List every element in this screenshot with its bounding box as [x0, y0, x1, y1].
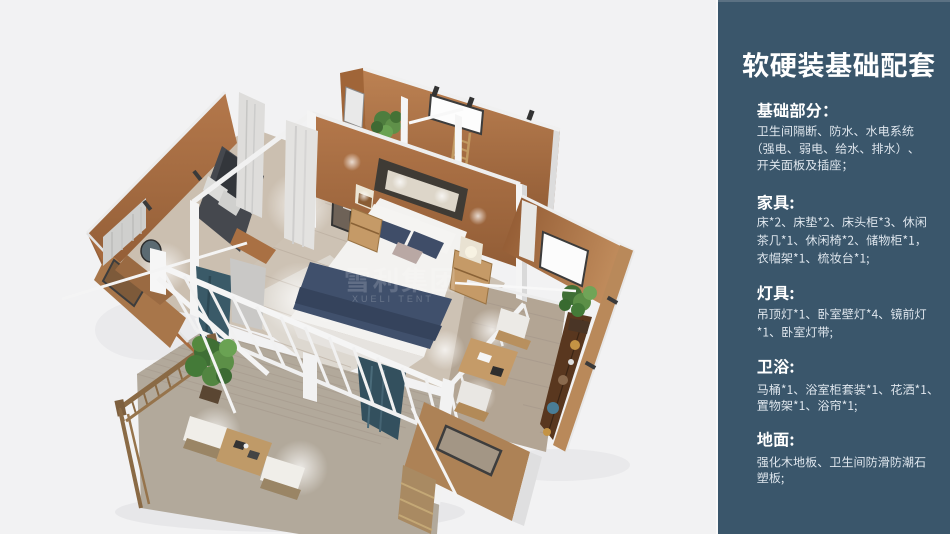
svg-text:XUELI TENT: XUELI TENT [352, 294, 434, 304]
